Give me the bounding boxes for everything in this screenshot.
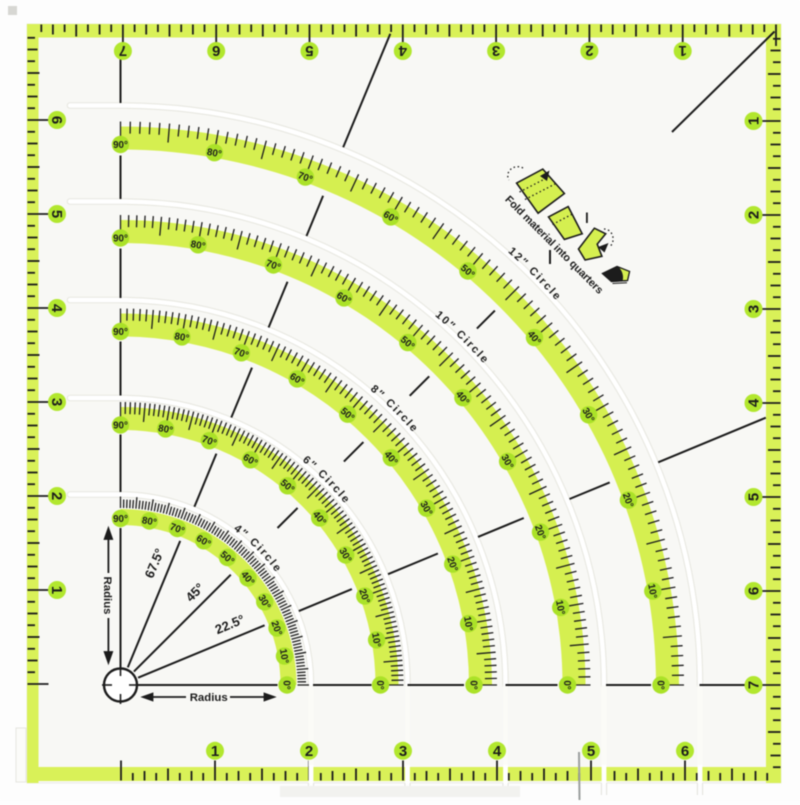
svg-text:7: 7 <box>746 681 763 689</box>
svg-text:4: 4 <box>48 304 65 313</box>
svg-text:1: 1 <box>48 586 65 594</box>
svg-text:6: 6 <box>746 587 763 595</box>
svg-text:5: 5 <box>48 210 65 218</box>
svg-text:3: 3 <box>399 743 407 760</box>
svg-text:6: 6 <box>48 116 65 124</box>
svg-text:0°: 0° <box>468 680 479 689</box>
svg-text:7: 7 <box>119 42 127 59</box>
svg-text:2: 2 <box>305 743 313 760</box>
svg-text:Radius: Radius <box>190 692 228 704</box>
svg-text:90°: 90° <box>113 420 128 431</box>
svg-text:90°: 90° <box>113 140 128 151</box>
svg-text:90°: 90° <box>113 514 128 525</box>
svg-text:0°: 0° <box>374 680 385 689</box>
svg-text:5: 5 <box>746 493 763 501</box>
svg-text:90°: 90° <box>113 327 128 338</box>
svg-text:90°: 90° <box>113 233 128 244</box>
svg-text:2: 2 <box>48 492 65 500</box>
svg-text:Radius: Radius <box>101 577 113 615</box>
svg-text:4: 4 <box>493 743 502 760</box>
svg-text:2: 2 <box>585 42 593 59</box>
svg-text:2: 2 <box>746 211 763 219</box>
svg-text:3: 3 <box>48 398 65 406</box>
svg-text:3: 3 <box>746 305 763 313</box>
svg-text:3: 3 <box>492 42 500 59</box>
svg-text:1: 1 <box>746 117 763 125</box>
svg-text:4: 4 <box>398 42 407 59</box>
svg-text:1: 1 <box>211 743 219 760</box>
svg-text:0°: 0° <box>655 680 666 689</box>
svg-text:6: 6 <box>681 743 689 760</box>
svg-text:5: 5 <box>587 743 595 760</box>
svg-text:1: 1 <box>679 42 687 59</box>
svg-text:5: 5 <box>305 42 313 59</box>
svg-text:6: 6 <box>212 42 220 59</box>
svg-text:4: 4 <box>746 398 763 407</box>
svg-text:0°: 0° <box>281 680 292 689</box>
svg-text:0°: 0° <box>561 680 572 689</box>
